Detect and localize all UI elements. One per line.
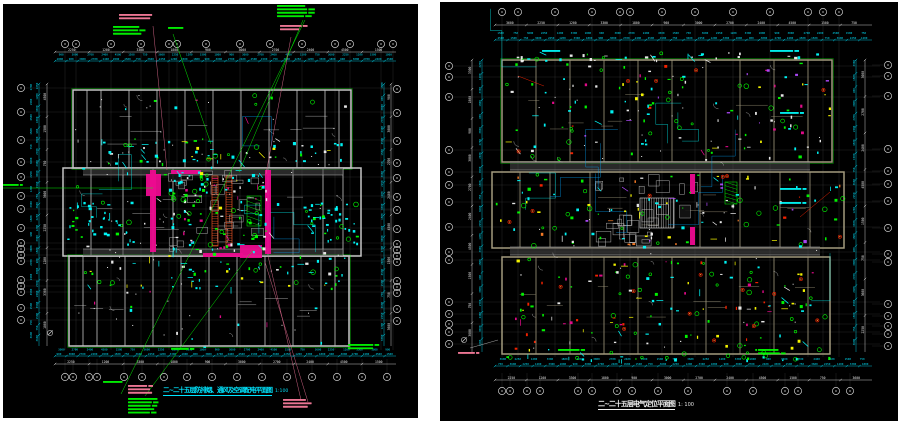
hvac-plan-title: 二~二十五层防排烟、通风及空调配电平面图1:100 [163, 387, 288, 395]
svg-text:1800: 1800 [214, 53, 221, 57]
svg-text:900: 900 [573, 362, 578, 366]
svg-text:3000: 3000 [216, 57, 223, 61]
svg-text:2700: 2700 [775, 36, 782, 40]
svg-text:2700: 2700 [804, 31, 811, 35]
svg-text:2250: 2250 [672, 362, 679, 366]
svg-text:750: 750 [261, 352, 266, 356]
svg-text:1500: 1500 [116, 348, 123, 352]
svg-text:1200: 1200 [171, 57, 178, 61]
svg-text:4500: 4500 [380, 268, 384, 275]
svg-text:900: 900 [35, 128, 39, 133]
svg-text:2400: 2400 [239, 57, 246, 61]
svg-text:3000: 3000 [614, 31, 621, 35]
svg-text:1800: 1800 [171, 48, 179, 52]
svg-text:2400: 2400 [29, 273, 33, 280]
svg-text:3600: 3600 [147, 57, 154, 61]
svg-text:2250: 2250 [703, 357, 710, 361]
svg-text:1800: 1800 [585, 31, 592, 35]
svg-text:1200: 1200 [35, 93, 39, 100]
svg-text:2700: 2700 [29, 259, 33, 266]
svg-text:2250: 2250 [43, 224, 47, 232]
svg-text:1200: 1200 [852, 207, 856, 214]
svg-text:3000: 3000 [353, 57, 360, 61]
electrical-plan-title-scale: 1: 100 [678, 402, 694, 408]
svg-text:4500: 4500 [341, 48, 349, 52]
svg-text:4500: 4500 [29, 288, 33, 295]
svg-text:2400: 2400 [380, 126, 384, 133]
dimension-strips: 3600225012003300180090030002700240045001… [468, 21, 872, 381]
svg-text:1200: 1200 [531, 357, 538, 361]
svg-text:900: 900 [387, 94, 391, 100]
svg-text:2250: 2250 [68, 48, 76, 52]
svg-text:4500: 4500 [250, 57, 257, 61]
svg-text:2400: 2400 [852, 125, 856, 132]
svg-text:2400: 2400 [363, 352, 370, 356]
svg-text:1800: 1800 [329, 57, 336, 61]
svg-text:900: 900 [631, 376, 637, 380]
svg-text:1200: 1200 [569, 21, 577, 25]
svg-text:2400: 2400 [726, 376, 734, 380]
svg-text:2700: 2700 [29, 84, 33, 91]
svg-text:1800: 1800 [632, 21, 640, 25]
svg-text:3300: 3300 [478, 87, 482, 94]
svg-text:3000: 3000 [29, 245, 33, 252]
svg-text:1500: 1500 [852, 153, 856, 160]
svg-text:3600: 3600 [35, 202, 39, 209]
svg-text:3600: 3600 [702, 31, 709, 35]
svg-text:3600: 3600 [158, 53, 165, 57]
svg-text:1200: 1200 [539, 376, 547, 380]
svg-text:3300: 3300 [723, 36, 730, 40]
svg-text:900: 900 [468, 128, 472, 134]
svg-text:1800: 1800 [711, 362, 718, 366]
svg-text:3300: 3300 [136, 48, 144, 52]
svg-text:750: 750 [273, 57, 278, 61]
svg-text:1800: 1800 [852, 233, 856, 240]
cad-drawings-canvas: 2250120033001800900300027002400450015001… [0, 0, 900, 429]
svg-text:1800: 1800 [29, 215, 33, 222]
svg-text:1500: 1500 [821, 21, 829, 25]
svg-text:1200: 1200 [186, 53, 193, 57]
svg-text:2400: 2400 [861, 144, 865, 152]
svg-text:3600: 3600 [811, 362, 818, 366]
svg-text:750: 750 [860, 357, 865, 361]
svg-text:1500: 1500 [35, 181, 39, 188]
svg-text:3000: 3000 [610, 36, 617, 40]
svg-text:4500: 4500 [101, 348, 108, 352]
svg-text:1500: 1500 [124, 57, 131, 61]
svg-text:1500: 1500 [128, 53, 135, 57]
electrical-plan-title-text: 二~二十五层电气定位平面图 [598, 400, 675, 410]
svg-text:2250: 2250 [29, 171, 33, 178]
svg-text:3000: 3000 [69, 352, 76, 356]
svg-text:1200: 1200 [719, 357, 726, 361]
hvac-plan-sheet: 2250120033001800900300027002400450015001… [3, 4, 418, 418]
svg-text:3000: 3000 [380, 104, 384, 111]
svg-text:2250: 2250 [342, 53, 349, 57]
svg-text:2700: 2700 [351, 352, 358, 356]
svg-text:3000: 3000 [468, 154, 472, 162]
svg-text:3000: 3000 [861, 71, 865, 79]
svg-text:2400: 2400 [611, 362, 618, 366]
electrical-plan-sheet: 3600225012003300180090030002700240045001… [440, 2, 898, 421]
svg-text:4500: 4500 [238, 352, 245, 356]
svg-text:750: 750 [820, 376, 826, 380]
svg-text:3000: 3000 [781, 357, 788, 361]
svg-text:3000: 3000 [72, 53, 79, 57]
svg-text:1200: 1200 [356, 53, 363, 57]
svg-text:900: 900 [205, 360, 211, 364]
svg-text:1500: 1500 [845, 357, 852, 361]
svg-text:750: 750 [478, 194, 482, 199]
svg-text:750: 750 [861, 255, 865, 261]
svg-text:750: 750 [523, 36, 528, 40]
svg-text:3000: 3000 [478, 286, 482, 293]
svg-text:2700: 2700 [72, 348, 79, 352]
svg-text:2250: 2250 [698, 36, 705, 40]
svg-text:1800: 1800 [181, 352, 188, 356]
svg-text:750: 750 [686, 31, 691, 35]
svg-text:750: 750 [468, 303, 472, 309]
svg-text:3600: 3600 [527, 31, 534, 35]
svg-text:2700: 2700 [387, 158, 391, 166]
svg-text:900: 900 [775, 31, 780, 35]
svg-text:900: 900 [577, 357, 582, 361]
svg-text:3000: 3000 [229, 348, 236, 352]
svg-text:900: 900 [340, 57, 345, 61]
svg-text:1500: 1500 [29, 303, 33, 310]
svg-text:2700: 2700 [380, 246, 384, 253]
svg-text:4500: 4500 [270, 348, 277, 352]
svg-text:3600: 3600 [29, 157, 33, 164]
svg-text:1200: 1200 [159, 352, 166, 356]
svg-text:2250: 2250 [284, 352, 291, 356]
svg-text:3000: 3000 [664, 376, 672, 380]
svg-text:1800: 1800 [43, 321, 47, 329]
hvac-plan-drawing: 2250120033001800900300027002400450015001… [3, 4, 418, 418]
svg-text:2250: 2250 [67, 360, 75, 364]
svg-text:1200: 1200 [29, 185, 33, 192]
svg-text:2700: 2700 [273, 360, 281, 364]
svg-text:1500: 1500 [114, 352, 121, 356]
svg-text:3300: 3300 [200, 53, 207, 57]
svg-text:750: 750 [35, 194, 39, 199]
hvac-plan-title-text: 二~二十五层防排烟、通风及空调配电平面图 [163, 386, 272, 396]
electrical-plan-title: 二~二十五层电气定位平面图1: 100 [598, 401, 694, 408]
svg-text:2400: 2400 [852, 286, 856, 293]
svg-text:3300: 3300 [170, 352, 177, 356]
svg-text:750: 750 [130, 348, 135, 352]
svg-text:2250: 2250 [824, 362, 831, 366]
svg-text:750: 750 [387, 292, 391, 298]
svg-text:1800: 1800 [468, 96, 472, 104]
svg-text:2400: 2400 [29, 98, 33, 105]
svg-text:1800: 1800 [478, 100, 482, 107]
svg-text:900: 900 [852, 88, 856, 93]
svg-text:1800: 1800 [759, 31, 766, 35]
svg-text:2700: 2700 [363, 57, 370, 61]
svg-text:1500: 1500 [261, 57, 268, 61]
svg-text:2250: 2250 [380, 312, 384, 319]
svg-text:4500: 4500 [29, 114, 33, 121]
svg-text:3000: 3000 [380, 235, 384, 242]
svg-text:3600: 3600 [29, 331, 33, 338]
svg-text:2250: 2250 [541, 31, 548, 35]
svg-text:2700: 2700 [852, 273, 856, 280]
svg-text:1500: 1500 [846, 31, 853, 35]
svg-text:900: 900 [29, 231, 33, 236]
svg-text:4500: 4500 [468, 243, 472, 251]
svg-text:2250: 2250 [548, 36, 555, 40]
svg-text:900: 900 [478, 275, 482, 280]
svg-text:1500: 1500 [657, 357, 664, 361]
svg-text:3300: 3300 [569, 376, 577, 380]
svg-text:3600: 3600 [387, 323, 391, 331]
svg-text:900: 900 [724, 362, 729, 366]
svg-text:4500: 4500 [380, 137, 384, 144]
svg-text:3300: 3300 [35, 235, 39, 242]
svg-text:2250: 2250 [328, 348, 335, 352]
svg-text:750: 750 [43, 161, 47, 167]
svg-text:2700: 2700 [91, 57, 98, 61]
svg-text:750: 750 [380, 292, 384, 297]
svg-text:750: 750 [852, 326, 856, 331]
svg-text:750: 750 [852, 167, 856, 172]
svg-text:1800: 1800 [750, 357, 757, 361]
svg-text:3000: 3000 [35, 267, 39, 274]
svg-text:4500: 4500 [832, 31, 839, 35]
svg-text:900: 900 [478, 114, 482, 119]
svg-text:2700: 2700 [468, 183, 472, 191]
svg-text:2250: 2250 [861, 326, 865, 334]
svg-text:3300: 3300 [468, 67, 472, 75]
svg-text:3600: 3600 [510, 362, 517, 366]
svg-text:3300: 3300 [370, 53, 377, 57]
svg-text:3000: 3000 [205, 352, 212, 356]
svg-text:2700: 2700 [35, 148, 39, 155]
svg-text:2250: 2250 [850, 36, 857, 40]
svg-text:3600: 3600 [315, 348, 322, 352]
svg-text:1200: 1200 [295, 352, 302, 356]
svg-text:2250: 2250 [478, 220, 482, 227]
svg-text:3600: 3600 [837, 36, 844, 40]
svg-text:2250: 2250 [172, 53, 179, 57]
svg-text:3000: 3000 [585, 362, 592, 366]
svg-text:2400: 2400 [387, 191, 391, 199]
svg-text:2700: 2700 [852, 114, 856, 121]
svg-text:2700: 2700 [861, 108, 865, 116]
svg-text:3600: 3600 [687, 357, 694, 361]
svg-text:1800: 1800 [170, 360, 178, 364]
svg-text:1200: 1200 [535, 362, 542, 366]
svg-text:3600: 3600 [500, 357, 507, 361]
svg-text:1200: 1200 [837, 362, 844, 366]
svg-text:3000: 3000 [35, 136, 39, 143]
svg-text:3300: 3300 [548, 362, 555, 366]
svg-text:750: 750 [851, 21, 857, 25]
svg-text:2400: 2400 [643, 31, 650, 35]
svg-text:1200: 1200 [861, 36, 868, 40]
svg-text:3600: 3600 [43, 191, 47, 199]
svg-text:900: 900 [599, 31, 604, 35]
svg-text:2400: 2400 [35, 290, 39, 297]
svg-text:1500: 1500 [375, 360, 383, 364]
svg-text:750: 750 [29, 144, 33, 149]
electrical-plan-drawing: 3600225012003300180090030002700240045001… [440, 2, 898, 421]
svg-text:3600: 3600 [535, 36, 542, 40]
svg-text:1200: 1200 [380, 191, 384, 198]
svg-text:3000: 3000 [341, 352, 348, 356]
svg-text:1200: 1200 [730, 31, 737, 35]
svg-text:750: 750 [648, 362, 653, 366]
svg-text:3300: 3300 [600, 21, 608, 25]
svg-text:1500: 1500 [29, 128, 33, 135]
svg-text:3000: 3000 [852, 259, 856, 266]
svg-text:900: 900 [59, 53, 64, 57]
svg-text:2700: 2700 [623, 36, 630, 40]
svg-text:3000: 3000 [58, 348, 65, 352]
svg-text:900: 900 [380, 96, 384, 101]
svg-text:900: 900 [215, 348, 220, 352]
svg-text:3600: 3600 [686, 36, 693, 40]
svg-text:3300: 3300 [699, 362, 706, 366]
svg-text:1800: 1800 [385, 53, 392, 57]
svg-text:3600: 3600 [506, 21, 514, 25]
svg-text:1200: 1200 [102, 48, 110, 52]
svg-text:1800: 1800 [561, 357, 568, 361]
svg-text:1500: 1500 [300, 53, 307, 57]
svg-text:1500: 1500 [375, 48, 383, 52]
svg-text:750: 750 [143, 53, 148, 57]
svg-text:3000: 3000 [735, 362, 742, 366]
svg-text:750: 750 [861, 31, 866, 35]
svg-text:4500: 4500 [799, 36, 806, 40]
svg-text:2400: 2400 [787, 36, 794, 40]
fixture-symbols [496, 52, 845, 364]
svg-text:3300: 3300 [735, 357, 742, 361]
svg-text:4500: 4500 [498, 36, 505, 40]
svg-text:3000: 3000 [238, 360, 246, 364]
svg-text:3600: 3600 [273, 352, 280, 356]
svg-text:750: 750 [136, 57, 141, 61]
svg-text:900: 900 [229, 53, 234, 57]
svg-text:2400: 2400 [758, 21, 766, 25]
svg-text:900: 900 [329, 352, 334, 356]
svg-text:4500: 4500 [478, 166, 482, 173]
svg-text:2400: 2400 [103, 57, 110, 61]
svg-text:1500: 1500 [497, 31, 504, 35]
svg-text:2250: 2250 [380, 180, 384, 187]
svg-text:2400: 2400 [762, 362, 769, 366]
svg-text:750: 750 [380, 161, 384, 166]
svg-text:900: 900 [57, 352, 62, 356]
svg-text:4500: 4500 [375, 352, 382, 356]
svg-text:1800: 1800 [736, 36, 743, 40]
svg-text:4500: 4500 [641, 357, 648, 361]
svg-text:1500: 1500 [852, 312, 856, 319]
svg-text:4500: 4500 [386, 57, 393, 61]
svg-text:2700: 2700 [478, 139, 482, 146]
svg-text:1500: 1500 [636, 362, 643, 366]
svg-text:750: 750 [35, 325, 39, 330]
svg-text:3300: 3300 [852, 220, 856, 227]
svg-text:1500: 1500 [43, 125, 47, 133]
svg-text:3300: 3300 [43, 288, 47, 296]
svg-text:750: 750 [672, 36, 677, 40]
svg-text:2250: 2250 [35, 214, 39, 221]
svg-text:4500: 4500 [102, 352, 109, 356]
svg-text:2400: 2400 [813, 357, 820, 361]
svg-text:1800: 1800 [380, 213, 384, 220]
svg-text:4500: 4500 [624, 362, 631, 366]
svg-text:2400: 2400 [227, 352, 234, 356]
svg-text:2700: 2700 [244, 348, 251, 352]
svg-text:4500: 4500 [658, 31, 665, 35]
svg-text:4500: 4500 [387, 223, 391, 231]
svg-text:2250: 2250 [148, 352, 155, 356]
svg-text:900: 900 [193, 352, 198, 356]
svg-text:2250: 2250 [522, 362, 529, 366]
floor-plan-linework [491, 9, 845, 354]
svg-text:1200: 1200 [43, 257, 47, 265]
svg-text:3300: 3300 [137, 360, 145, 364]
svg-text:2400: 2400 [270, 53, 277, 57]
svg-text:1200: 1200 [478, 73, 482, 80]
svg-text:2250: 2250 [158, 348, 165, 352]
svg-text:750: 750 [498, 362, 503, 366]
svg-text:4500: 4500 [648, 36, 655, 40]
svg-text:4500: 4500 [340, 360, 348, 364]
svg-text:3300: 3300 [745, 31, 752, 35]
svg-text:900: 900 [598, 36, 603, 40]
svg-text:3300: 3300 [571, 31, 578, 35]
svg-text:750: 750 [799, 362, 804, 366]
svg-text:3000: 3000 [761, 36, 768, 40]
svg-text:2250: 2250 [716, 31, 723, 35]
svg-text:2700: 2700 [748, 362, 755, 366]
svg-text:1500: 1500 [786, 362, 793, 366]
svg-text:1200: 1200 [35, 225, 39, 232]
svg-text:3000: 3000 [387, 125, 391, 133]
svg-text:1800: 1800 [852, 74, 856, 81]
svg-text:900: 900 [385, 348, 390, 352]
svg-text:4500: 4500 [759, 376, 767, 380]
svg-text:1500: 1500 [478, 180, 482, 187]
svg-text:3000: 3000 [478, 127, 482, 134]
svg-text:900: 900 [852, 247, 856, 252]
svg-text:2700: 2700 [478, 299, 482, 306]
svg-text:1200: 1200 [686, 362, 693, 366]
svg-text:4500: 4500 [35, 170, 39, 177]
svg-text:1500: 1500 [811, 36, 818, 40]
svg-text:2250: 2250 [515, 357, 522, 361]
svg-text:750: 750 [124, 352, 129, 356]
svg-text:1800: 1800 [380, 82, 384, 89]
svg-text:4500: 4500 [113, 57, 120, 61]
svg-text:1800: 1800 [193, 57, 200, 61]
svg-text:2250: 2250 [35, 82, 39, 89]
svg-text:1800: 1800 [319, 352, 326, 356]
svg-text:2400: 2400 [307, 48, 315, 52]
svg-text:750: 750 [825, 36, 830, 40]
svg-text:2250: 2250 [159, 57, 166, 61]
svg-text:3600: 3600 [852, 376, 860, 380]
svg-text:2700: 2700 [628, 31, 635, 35]
svg-text:3300: 3300 [319, 57, 326, 61]
svg-text:2700: 2700 [598, 362, 605, 366]
svg-text:3300: 3300 [850, 362, 857, 366]
svg-text:3000: 3000 [788, 31, 795, 35]
